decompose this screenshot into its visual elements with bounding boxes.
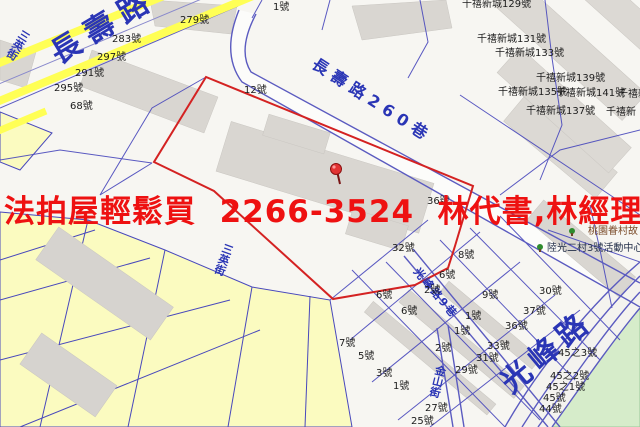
house-number-label: 6號 — [401, 307, 417, 317]
house-number-label: 6號 — [376, 291, 392, 301]
house-number-label: 1號 — [465, 312, 481, 322]
street-label-sanying-st: 三英街 — [5, 28, 32, 62]
house-number-label: 295號 — [54, 84, 83, 94]
house-number-label: 1號 — [454, 327, 470, 337]
house-number-label: 12號 — [244, 86, 267, 96]
street-label-jinshan-st: 金山街 — [428, 364, 447, 399]
house-number-label: 297號 — [97, 53, 126, 63]
house-number-label: 279號 — [180, 16, 209, 26]
house-number-label: 千禧新城137號 — [526, 107, 595, 117]
house-number-label: 千禧新城141號 — [556, 89, 625, 99]
house-number-label: 30號 — [539, 287, 562, 297]
house-number-label: 45之2號 — [550, 372, 589, 382]
house-number-label: 32號 — [392, 244, 415, 254]
house-number-label: 27號 — [425, 404, 448, 414]
house-number-label: 7號 — [339, 339, 355, 349]
house-number-label: 37號 — [523, 307, 546, 317]
street-label-changshou-260-lane: 長壽路260巷 — [309, 56, 435, 145]
ad-overlay-text: 法拍屋輕鬆買 2266-3524 林代書,林經理 — [4, 186, 640, 231]
house-number-label: 3號 — [376, 369, 392, 379]
house-number-label: 千禧新 — [606, 108, 636, 118]
house-number-label: 283號 — [112, 35, 141, 45]
map-canvas[interactable]: 長壽路長壽路260巷光峰路金山街三英街三英街光峰路9巷桃園眷村故陸光二村3號活動… — [0, 0, 640, 427]
house-number-label: 1號 — [273, 3, 289, 13]
house-number-label: 千禧新 — [618, 90, 640, 100]
house-number-label: 千禧新城139號 — [536, 74, 605, 84]
poi-label-activity-center: 陸光二村3號活動中心 — [547, 244, 640, 254]
house-number-label: 千禧新城131號 — [477, 35, 546, 45]
house-number-label: 6號 — [439, 271, 455, 281]
house-number-label: 33號 — [487, 342, 510, 352]
house-number-label: 45之1號 — [546, 383, 585, 393]
house-number-label: 31號 — [476, 354, 499, 364]
house-number-label: 2號 — [435, 344, 451, 354]
house-number-label: 44號 — [539, 405, 562, 415]
house-number-label: 29號 — [455, 366, 478, 376]
house-number-label: 8號 — [458, 251, 474, 261]
house-number-label: 9號 — [482, 291, 498, 301]
house-number-label: 25號 — [411, 417, 434, 427]
house-number-label: 千禧新城129號 — [462, 0, 531, 10]
house-number-label: 2號 — [424, 286, 440, 296]
house-number-label: 45之3號 — [558, 349, 597, 359]
street-label-sanying-st: 三英街 — [213, 242, 235, 277]
house-number-label: 45號 — [543, 394, 566, 404]
house-number-label: 千禧新城133號 — [495, 49, 564, 59]
house-number-label: 5號 — [358, 352, 374, 362]
house-number-label: 36號 — [505, 322, 528, 332]
house-number-label: 1號 — [393, 382, 409, 392]
house-number-label: 291號 — [75, 69, 104, 79]
house-number-label: 68號 — [70, 102, 93, 112]
